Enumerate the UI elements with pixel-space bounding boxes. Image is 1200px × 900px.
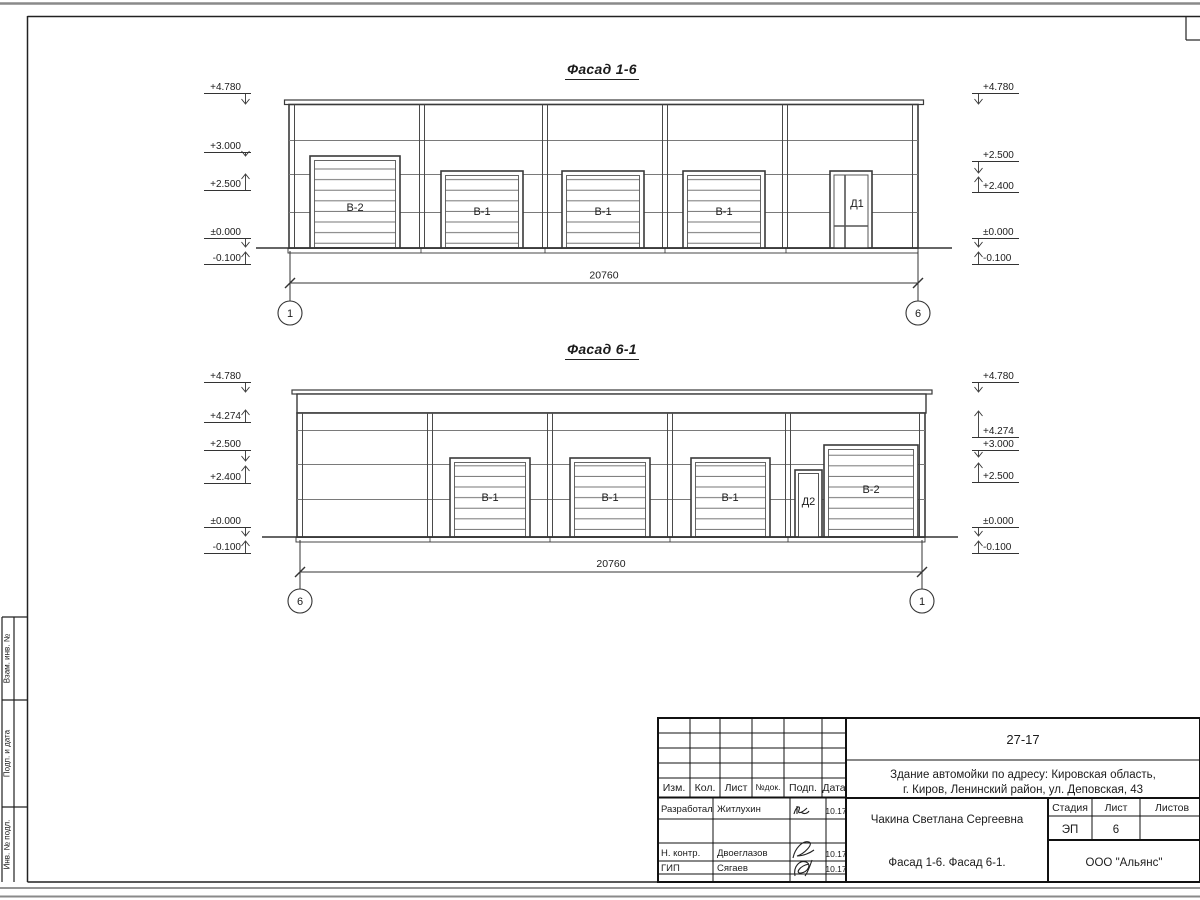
stamp-row1-name: Житлухин: [717, 804, 761, 815]
door-v1-b-label: В-1: [594, 206, 611, 218]
axis-f2-right: 1: [919, 596, 925, 608]
stamp-client: Чакина Светлана Сергеевна: [871, 814, 1024, 826]
side-column: Взам. инв. № Подп. и дата Инв. № подл.: [2, 617, 28, 882]
door-v1-a: В-1: [441, 171, 523, 248]
stamp-sheet-number: 6: [1113, 824, 1119, 836]
ground-line: [256, 248, 952, 253]
door-d1-label: Д1: [850, 198, 864, 210]
elev-f2-r5: -0.100: [983, 542, 1012, 553]
elev-f1-r0: +4.780: [983, 82, 1014, 93]
stamp-row3-name: Сягаев: [717, 863, 748, 874]
door-v2: В-2: [310, 156, 400, 248]
stamp-row3-role: ГИП: [661, 863, 680, 874]
stamp-row3-date: 10.17: [825, 864, 847, 874]
ground-line-2: [262, 537, 958, 542]
stamp-col-izm: Изм.: [663, 782, 686, 794]
elev-f2-l5: -0.100: [213, 542, 242, 553]
signature-marks: [793, 806, 814, 876]
dimension-f1: [278, 251, 930, 325]
stamp-project-line2: г. Киров, Ленинский район, ул. Деповская…: [903, 784, 1143, 796]
elev-f1-l0: +4.780: [210, 82, 241, 93]
elev-f1-r3: ±0.000: [983, 227, 1014, 238]
door-v1-a-label: В-1: [473, 206, 490, 218]
door-v1-c-label: В-1: [715, 206, 732, 218]
drawing-sheet: Взам. инв. № Подп. и дата Инв. № подл. Ф…: [0, 0, 1200, 900]
elev-f2-r1: +4.274: [983, 426, 1014, 437]
axis-f1-left: 1: [287, 308, 293, 320]
stamp-col-podp: Подп.: [789, 782, 817, 794]
stamp-stage-label: Стадия: [1052, 802, 1088, 814]
elev-f2-r2: +3.000: [983, 439, 1014, 450]
stamp-col-ndok: №док.: [756, 782, 781, 792]
door-v1-f-label: В-1: [721, 492, 738, 504]
door-d2: Д2: [795, 470, 822, 537]
stamp-col-data: Дата: [822, 782, 845, 794]
dimension-f2-value: 20760: [596, 558, 625, 570]
elev-f1-l1: +3.000: [210, 141, 241, 152]
elev-f2-r4: ±0.000: [983, 516, 1014, 527]
elev-f1-r4: -0.100: [983, 253, 1012, 264]
stamp-stage-value: ЭП: [1062, 824, 1079, 836]
elevation-marks-f2-left: [204, 383, 251, 554]
stamp-organization: ООО "Альянс": [1086, 857, 1163, 869]
elev-f2-r0: +4.780: [983, 371, 1014, 382]
dimension-f2: [288, 540, 934, 613]
facade-6-1-drawing: Фасад 6-1 В-1 В-1: [204, 341, 1019, 613]
elev-f1-r2: +2.400: [983, 181, 1014, 192]
top-right-doc-box: [1186, 16, 1200, 40]
elevation-marks-f1-right: [972, 94, 1019, 265]
stamp-row2-role: Н. контр.: [661, 848, 700, 859]
elev-f2-l4: ±0.000: [210, 516, 241, 527]
elev-f2-l1: +4.274: [210, 411, 241, 422]
facade2-title: Фасад 6-1: [567, 341, 637, 357]
elev-f1-l2: +2.500: [210, 179, 241, 190]
elev-f2-l0: +4.780: [210, 371, 241, 382]
stamp-listov-label: Листов: [1155, 802, 1190, 814]
signature-row2: [793, 842, 814, 858]
stamp-col-kol: Кол.: [695, 782, 716, 794]
door-v1-d: В-1: [450, 458, 530, 537]
elev-f1-r1: +2.500: [983, 150, 1014, 161]
door-v1-e-label: В-1: [601, 492, 618, 504]
stamp-col-list: Лист: [725, 782, 748, 794]
facade1-title: Фасад 1-6: [567, 61, 637, 77]
door-v2-label: В-2: [346, 202, 363, 214]
side-box1-label: Взам. инв. №: [3, 633, 12, 683]
door-v1-f: В-1: [691, 458, 770, 537]
elev-f2-l3: +2.400: [210, 472, 241, 483]
door-d2-label: Д2: [802, 496, 816, 508]
drawing-canvas: Взам. инв. № Подп. и дата Инв. № подл. Ф…: [0, 0, 1200, 900]
door-d1: Д1: [830, 171, 872, 248]
door-v2-2: В-2: [824, 445, 918, 537]
stamp-doc-number: 27-17: [1006, 732, 1039, 747]
facade-1-6-drawing: Фасад 1-6 В-2 В-1: [204, 61, 1019, 325]
axis-f2-left: 6: [297, 596, 303, 608]
elev-f1-l3: ±0.000: [210, 227, 241, 238]
title-block: 27-17 Здание автомойки по адресу: Кировс…: [658, 718, 1200, 882]
stamp-project-line1: Здание автомойки по адресу: Кировская об…: [890, 769, 1156, 781]
signature-row1: [794, 806, 809, 814]
door-v1-c: В-1: [683, 171, 765, 248]
elev-f1-l4: -0.100: [213, 253, 242, 264]
side-box2-label: Подп. и дата: [3, 729, 12, 777]
stamp-list-label: Лист: [1105, 802, 1128, 814]
stamp-row2-name: Двоеглазов: [717, 848, 768, 859]
door-v2-2-label: В-2: [862, 484, 879, 496]
door-v1-e: В-1: [570, 458, 650, 537]
door-v1-d-label: В-1: [481, 492, 498, 504]
elevation-marks-f2-right: [972, 383, 1019, 554]
elev-f2-l2: +2.500: [210, 439, 241, 450]
stamp-row1-date: 10.17: [825, 806, 847, 816]
door-v1-b: В-1: [562, 171, 644, 248]
dimension-f1-value: 20760: [589, 270, 618, 282]
stamp-row1-role: Разработал: [661, 804, 713, 815]
stamp-sheet-title: Фасад 1-6. Фасад 6-1.: [888, 857, 1005, 869]
elev-f2-r3: +2.500: [983, 471, 1014, 482]
stamp-row2-date: 10.17: [825, 849, 847, 859]
side-box3-label: Инв. № подл.: [3, 820, 12, 870]
axis-f1-right: 6: [915, 308, 921, 320]
